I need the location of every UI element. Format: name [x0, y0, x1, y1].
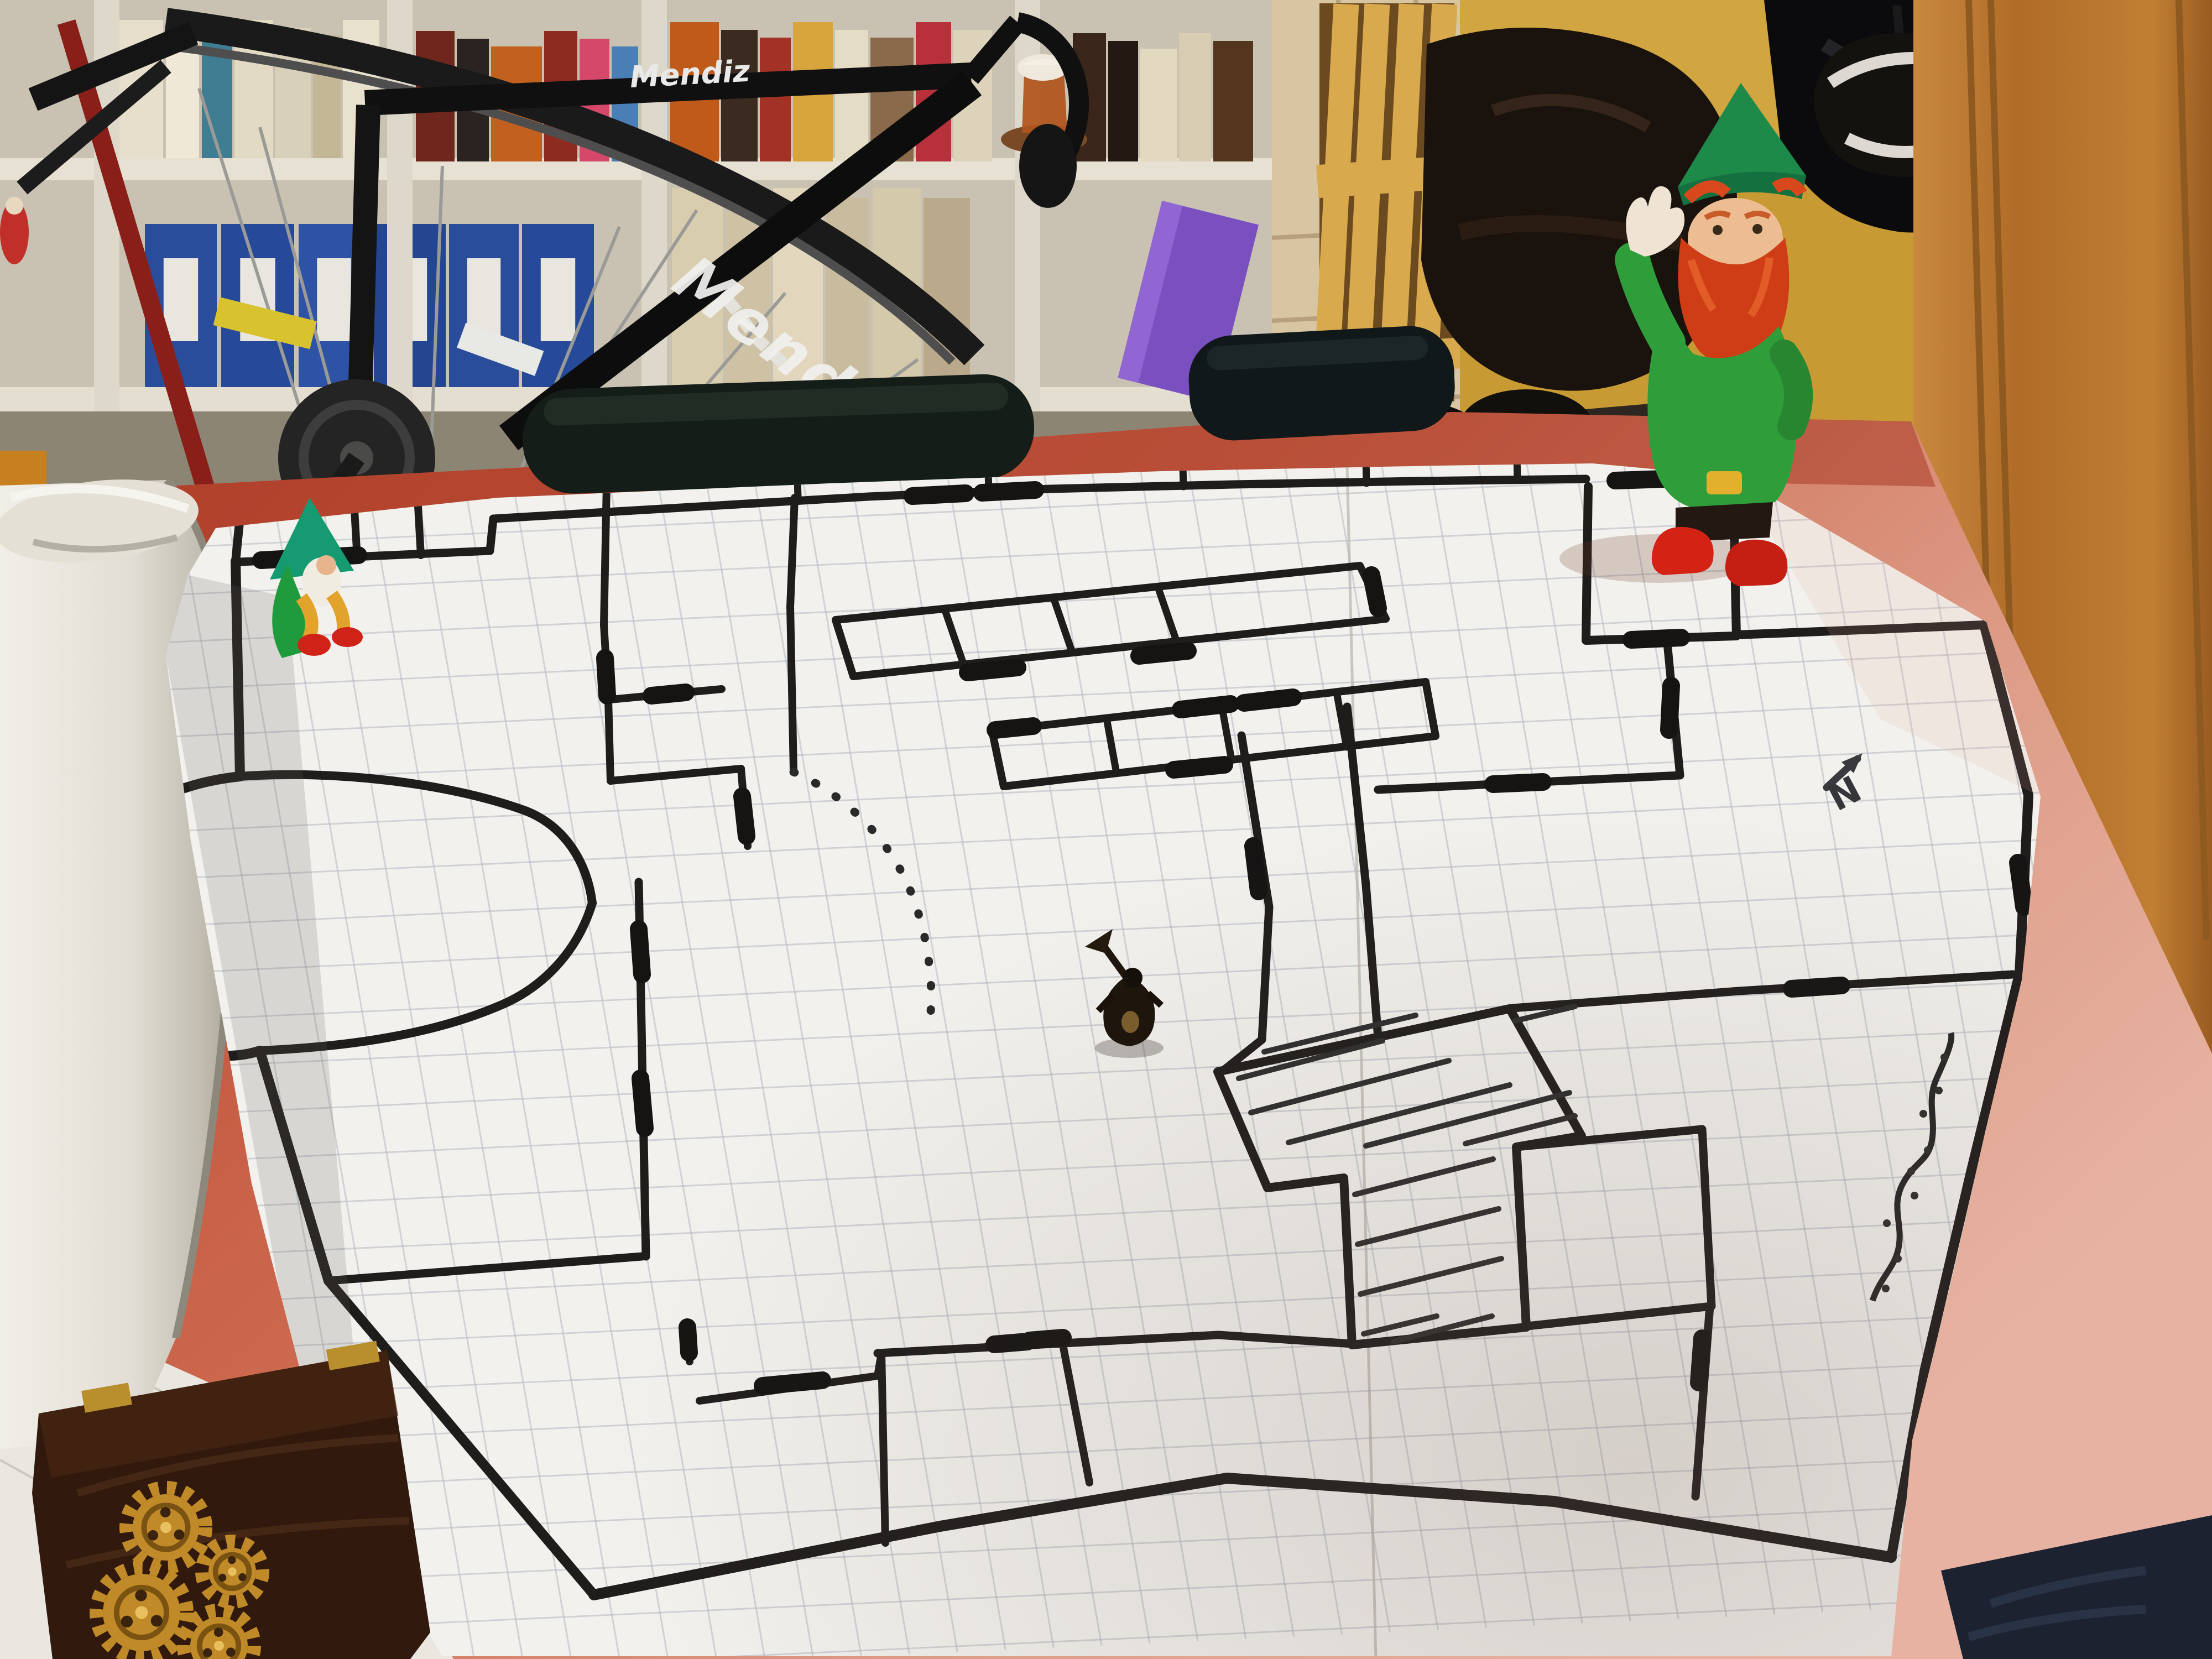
- bike-brand-top-tube: Mendiz: [629, 54, 751, 95]
- chair-right: [1187, 324, 1457, 443]
- small-gnome-shoe: [332, 627, 363, 647]
- gnome-shoe-right: [1725, 540, 1787, 586]
- dark-bags: [1421, 28, 1737, 391]
- mini-torso-highlight: [1121, 1011, 1139, 1033]
- chair-left: [521, 373, 1036, 495]
- mini-head: [1123, 968, 1142, 988]
- photo-canvas: Mendiz Mendiz: [0, 0, 2212, 1659]
- gnome-belt-buckle: [1707, 471, 1742, 494]
- scene: Mendiz Mendiz: [0, 0, 2212, 1659]
- paper-shading: [166, 463, 2046, 1659]
- small-gnome-shoe: [298, 634, 331, 656]
- book-spines-far-right: [1073, 33, 1253, 161]
- gnome-shoe-left: [1652, 527, 1714, 575]
- gnome-right-arm: [1784, 354, 1798, 426]
- small-gnome-face: [316, 555, 336, 575]
- bike-brake-hood: [1019, 124, 1077, 208]
